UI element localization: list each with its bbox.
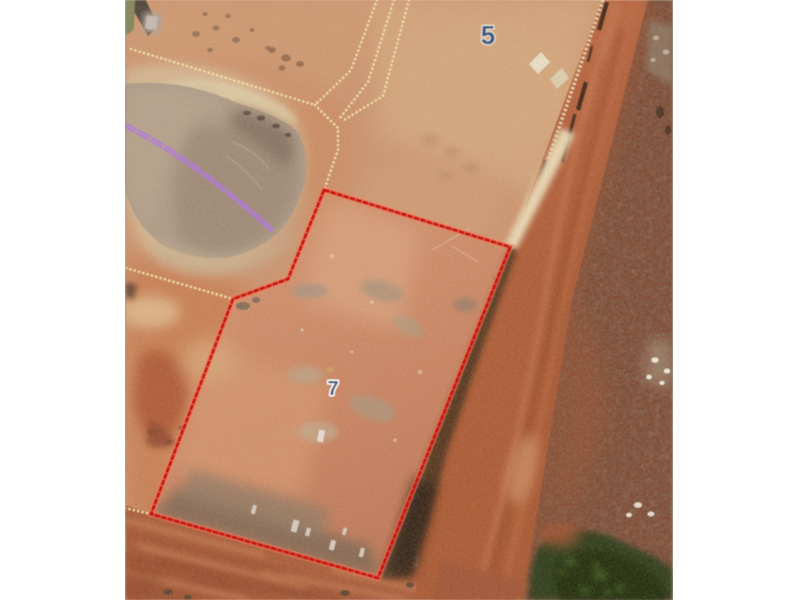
svg-text:7: 7 — [327, 378, 338, 400]
svg-text:5: 5 — [481, 20, 495, 50]
